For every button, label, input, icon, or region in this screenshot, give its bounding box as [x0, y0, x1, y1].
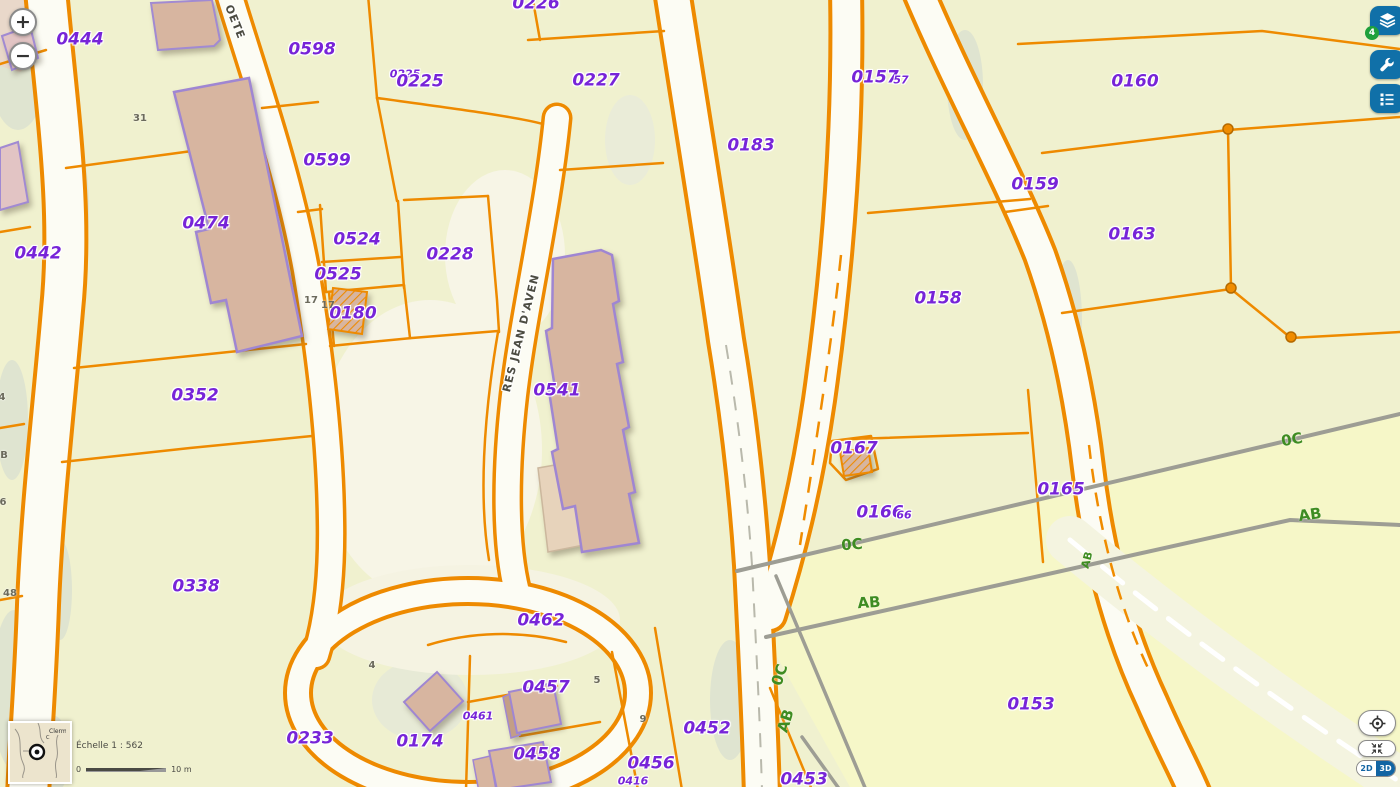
map-canvas[interactable] [0, 0, 1400, 787]
view-dimension-toggle[interactable]: 2D 3D [1356, 760, 1396, 777]
scale-end-label: 10 m [171, 765, 192, 774]
scale-bar [86, 768, 166, 772]
scale-start-label: 0 [76, 765, 81, 774]
fit-extent-icon [1370, 742, 1384, 755]
view-2d-button[interactable]: 2D [1357, 761, 1376, 776]
minimap-place-abbr: C [46, 735, 50, 741]
locate-button[interactable] [1358, 710, 1396, 736]
fit-extent-button[interactable] [1358, 740, 1396, 757]
target-icon [1369, 715, 1386, 732]
legend-button[interactable] [1370, 84, 1400, 113]
view-3d-button[interactable]: 3D [1376, 761, 1395, 776]
layers-button[interactable]: 4 [1370, 6, 1400, 35]
layers-icon [1379, 12, 1396, 29]
tools-button[interactable] [1370, 50, 1400, 79]
minimap-place-label: Clerm [49, 728, 66, 735]
zoom-in-button[interactable]: + [9, 8, 37, 36]
map-viewport[interactable]: 0444059802260225022502270157570160018305… [0, 0, 1400, 787]
wrench-icon [1379, 57, 1395, 73]
minimap[interactable]: Clerm C [8, 721, 72, 784]
list-icon [1379, 91, 1395, 107]
layers-count-badge: 4 [1365, 26, 1379, 40]
scale-box: Échelle 1 : 562 0 10 m [76, 741, 192, 774]
scale-label: Échelle 1 : 562 [76, 741, 192, 751]
minimap-crosshair-icon [30, 745, 44, 759]
zoom-out-button[interactable]: − [9, 42, 37, 70]
